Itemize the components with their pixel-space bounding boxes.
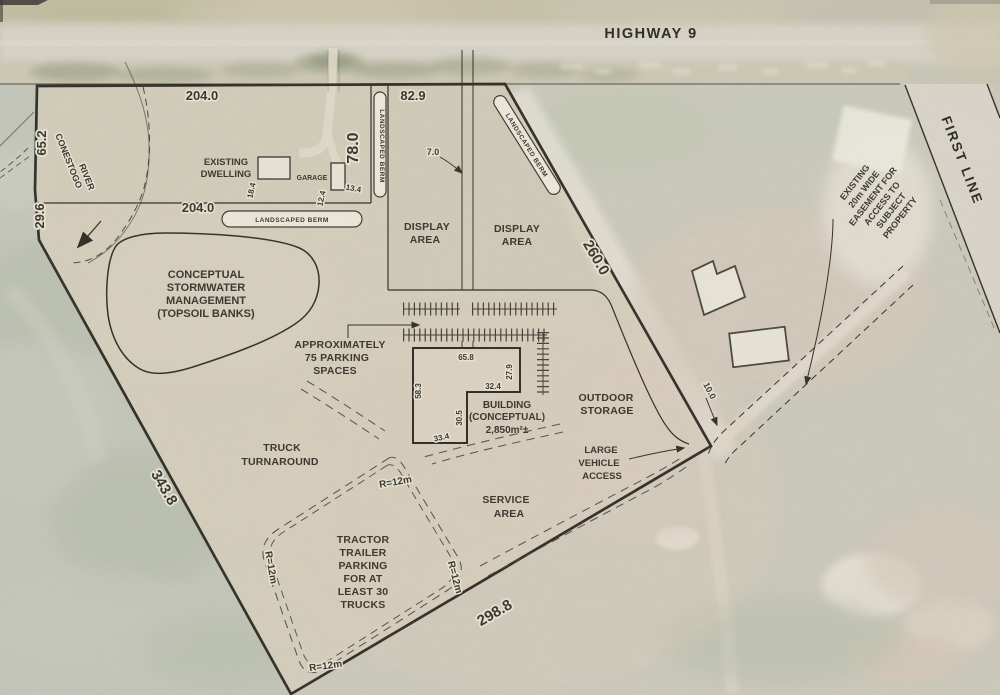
site-plan-scan: HIGHWAY 9 FIRST LINE CONESTOGO RIVER 204… bbox=[0, 0, 1000, 695]
scan-texture bbox=[0, 0, 1000, 695]
site-plan-svg: HIGHWAY 9 FIRST LINE CONESTOGO RIVER 204… bbox=[0, 0, 1000, 695]
